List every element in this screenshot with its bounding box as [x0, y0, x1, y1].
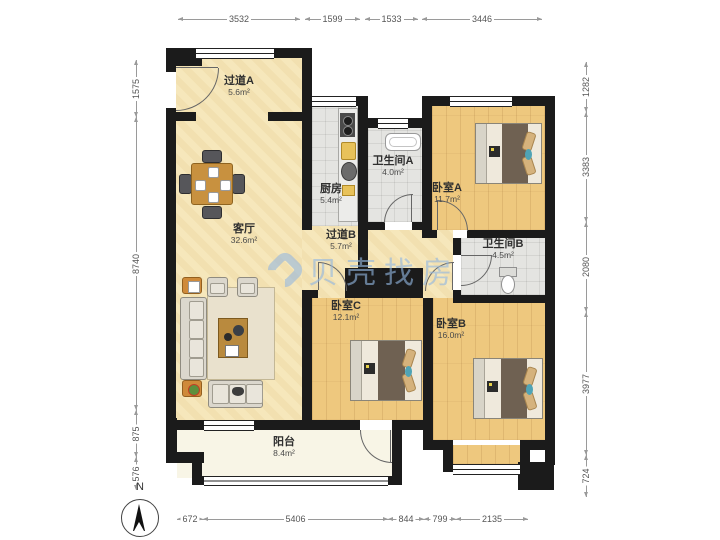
- plant: [188, 384, 200, 396]
- plate: [195, 180, 206, 191]
- room-area: 16.0m²: [436, 331, 466, 341]
- wall-segment: [302, 290, 312, 420]
- wall-segment: [302, 48, 312, 230]
- compass-north-label: N: [136, 481, 144, 493]
- loveseat: [208, 380, 263, 408]
- room-area: 8.4m²: [273, 449, 295, 459]
- wall-segment: [412, 222, 432, 230]
- room-area: 32.6m²: [231, 236, 257, 246]
- room-name: 卫生间B: [483, 238, 524, 251]
- window: [196, 48, 274, 59]
- plate: [208, 192, 219, 203]
- room-name: 客厅: [231, 223, 257, 236]
- wall-segment: [358, 96, 368, 268]
- wall-segment: [422, 96, 432, 230]
- sink: [341, 162, 357, 181]
- wall-segment: [166, 58, 176, 72]
- room-area: 5.7m²: [326, 242, 356, 252]
- room-name: 过道B: [326, 229, 356, 242]
- wall-segment: [461, 295, 555, 303]
- room-area: 11.7m²: [432, 195, 462, 205]
- window: [204, 420, 254, 431]
- room-label-hallway-b: 过道B 5.7m²: [326, 229, 356, 251]
- door-leaf-balcony: [390, 430, 391, 462]
- bed-decor: [526, 384, 533, 395]
- window: [204, 476, 388, 486]
- dimension-bottom: 2135: [456, 513, 528, 525]
- wall-segment: [392, 428, 402, 485]
- door-leaf-bedroom-c: [318, 262, 319, 290]
- wall-segment: [268, 112, 312, 121]
- dining-chair: [202, 150, 222, 163]
- bed-bedroom-c: [350, 340, 422, 401]
- sofa-l-shaped: [180, 297, 207, 380]
- dimension-top: 1533: [365, 13, 418, 25]
- bed-tray: [487, 381, 498, 392]
- room-name: 阳台: [273, 436, 295, 449]
- dimension-top: 3532: [178, 13, 300, 25]
- room-area: 5.6m²: [224, 88, 254, 98]
- armchair: [207, 277, 228, 297]
- room-label-bathroom-b: 卫生间B 4.5m²: [483, 238, 524, 260]
- floor-bay-window: [453, 445, 520, 464]
- dimension-left: 1575: [130, 60, 142, 117]
- room-label-bedroom-b: 卧室B 16.0m²: [436, 318, 466, 340]
- room-label-balcony: 阳台 8.4m²: [273, 436, 295, 458]
- room-area: 5.4m²: [320, 196, 342, 206]
- dimension-bottom: 672: [177, 513, 203, 525]
- small-appliance: [342, 185, 355, 196]
- room-name: 卧室B: [436, 318, 466, 331]
- wall-segment: [422, 230, 437, 238]
- dimension-right: 3383: [580, 112, 592, 222]
- plate: [208, 167, 219, 178]
- room-name: 卫生间A: [373, 155, 414, 168]
- armchair: [237, 277, 258, 297]
- room-label-bedroom-c: 卧室C 12.1m²: [331, 300, 361, 322]
- room-label-hallway-a: 过道A 5.6m²: [224, 75, 254, 97]
- door-leaf-bathroom-a: [411, 194, 412, 222]
- cushion: [232, 387, 244, 396]
- window: [450, 96, 512, 107]
- room-area: 12.1m²: [331, 313, 361, 323]
- door-leaf-entry: [176, 67, 218, 68]
- window: [378, 118, 408, 129]
- dimension-top: 1599: [305, 13, 360, 25]
- coffee-table: [218, 318, 248, 358]
- dining-chair: [232, 174, 245, 194]
- stove: [340, 113, 355, 137]
- cup: [224, 333, 232, 341]
- room-area: 4.0m²: [373, 168, 414, 178]
- plate: [220, 180, 231, 191]
- dimension-right: 1282: [580, 62, 592, 112]
- wall-segment: [453, 238, 461, 255]
- wall-segment: [423, 298, 433, 440]
- book: [188, 281, 200, 293]
- wall-segment: [443, 440, 453, 472]
- room-name: 卧室A: [432, 182, 462, 195]
- bed-bedroom-b: [473, 358, 543, 419]
- wall-segment: [520, 440, 555, 450]
- room-name: 厨房: [320, 183, 342, 196]
- dimension-top: 3446: [422, 13, 542, 25]
- side-table: [182, 380, 202, 397]
- dimension-left: 875: [130, 410, 142, 457]
- wall-segment: [166, 108, 176, 428]
- window: [312, 96, 356, 107]
- wall-segment: [453, 290, 461, 303]
- bed-bedroom-a: [475, 123, 542, 184]
- dimension-bottom: 844: [388, 513, 424, 525]
- dimension-right: 724: [580, 455, 592, 497]
- room-name: 卧室C: [331, 300, 361, 313]
- dining-chair: [202, 206, 222, 219]
- room-name: 过道A: [224, 75, 254, 88]
- wall-segment: [345, 268, 423, 298]
- dimension-bottom: 5406: [203, 513, 388, 525]
- bed-decor: [405, 366, 412, 377]
- compass-icon: [121, 499, 159, 537]
- dimension-bottom: 799: [424, 513, 456, 525]
- floor-plan-canvas: 过道A 5.6m² 厨房 5.4m² 卫生间A 4.0m² 卧室A 11.7m²…: [0, 0, 720, 540]
- door-leaf-bedroom-a: [437, 200, 438, 230]
- bed-tray: [364, 363, 375, 374]
- compass-needle-notch: [134, 522, 144, 531]
- room-label-living-room: 客厅 32.6m²: [231, 223, 257, 245]
- wall-segment: [545, 96, 555, 465]
- door-leaf-bedroom-b: [452, 262, 453, 290]
- bed-tray: [489, 146, 500, 157]
- dimension-right: 3977: [580, 312, 592, 455]
- wall-segment: [166, 112, 196, 121]
- room-area: 4.5m²: [483, 251, 524, 261]
- room-label-bedroom-a: 卧室A 11.7m²: [432, 182, 462, 204]
- toilet: [499, 267, 517, 294]
- wall-segment: [467, 230, 555, 238]
- bathtub: [385, 133, 421, 151]
- teapot: [233, 325, 244, 336]
- wall-segment: [368, 222, 385, 230]
- bed-decor: [525, 149, 532, 160]
- dining-table: [191, 163, 233, 205]
- room-label-bathroom-a: 卫生间A 4.0m²: [373, 155, 414, 177]
- window: [453, 464, 520, 475]
- wall-segment: [518, 462, 554, 490]
- tray: [225, 345, 239, 357]
- side-table: [182, 277, 202, 294]
- dimension-left: 8740: [130, 117, 142, 410]
- dimension-right: 2080: [580, 222, 592, 312]
- cutting-board: [341, 142, 356, 160]
- room-label-kitchen: 厨房 5.4m²: [320, 183, 342, 205]
